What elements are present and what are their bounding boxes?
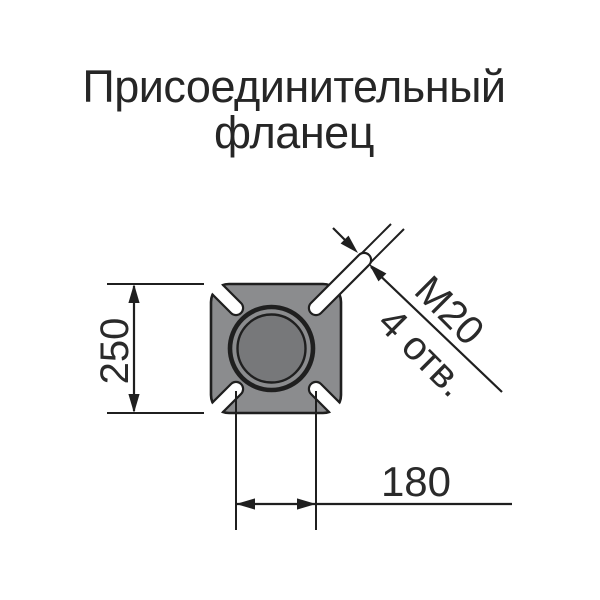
arrowhead-up <box>128 284 139 303</box>
arrowhead-right <box>297 498 316 509</box>
flange-drawing: 250 180 М20 4 отв. <box>0 0 600 600</box>
arrowhead-down <box>128 394 139 413</box>
arrowhead-left <box>236 498 255 509</box>
dim-value-180: 180 <box>381 458 451 505</box>
dim-value-250: 250 <box>93 318 137 385</box>
drawing-page: Присоединительный фланец <box>0 0 600 600</box>
bore-inner-circle <box>238 315 306 383</box>
